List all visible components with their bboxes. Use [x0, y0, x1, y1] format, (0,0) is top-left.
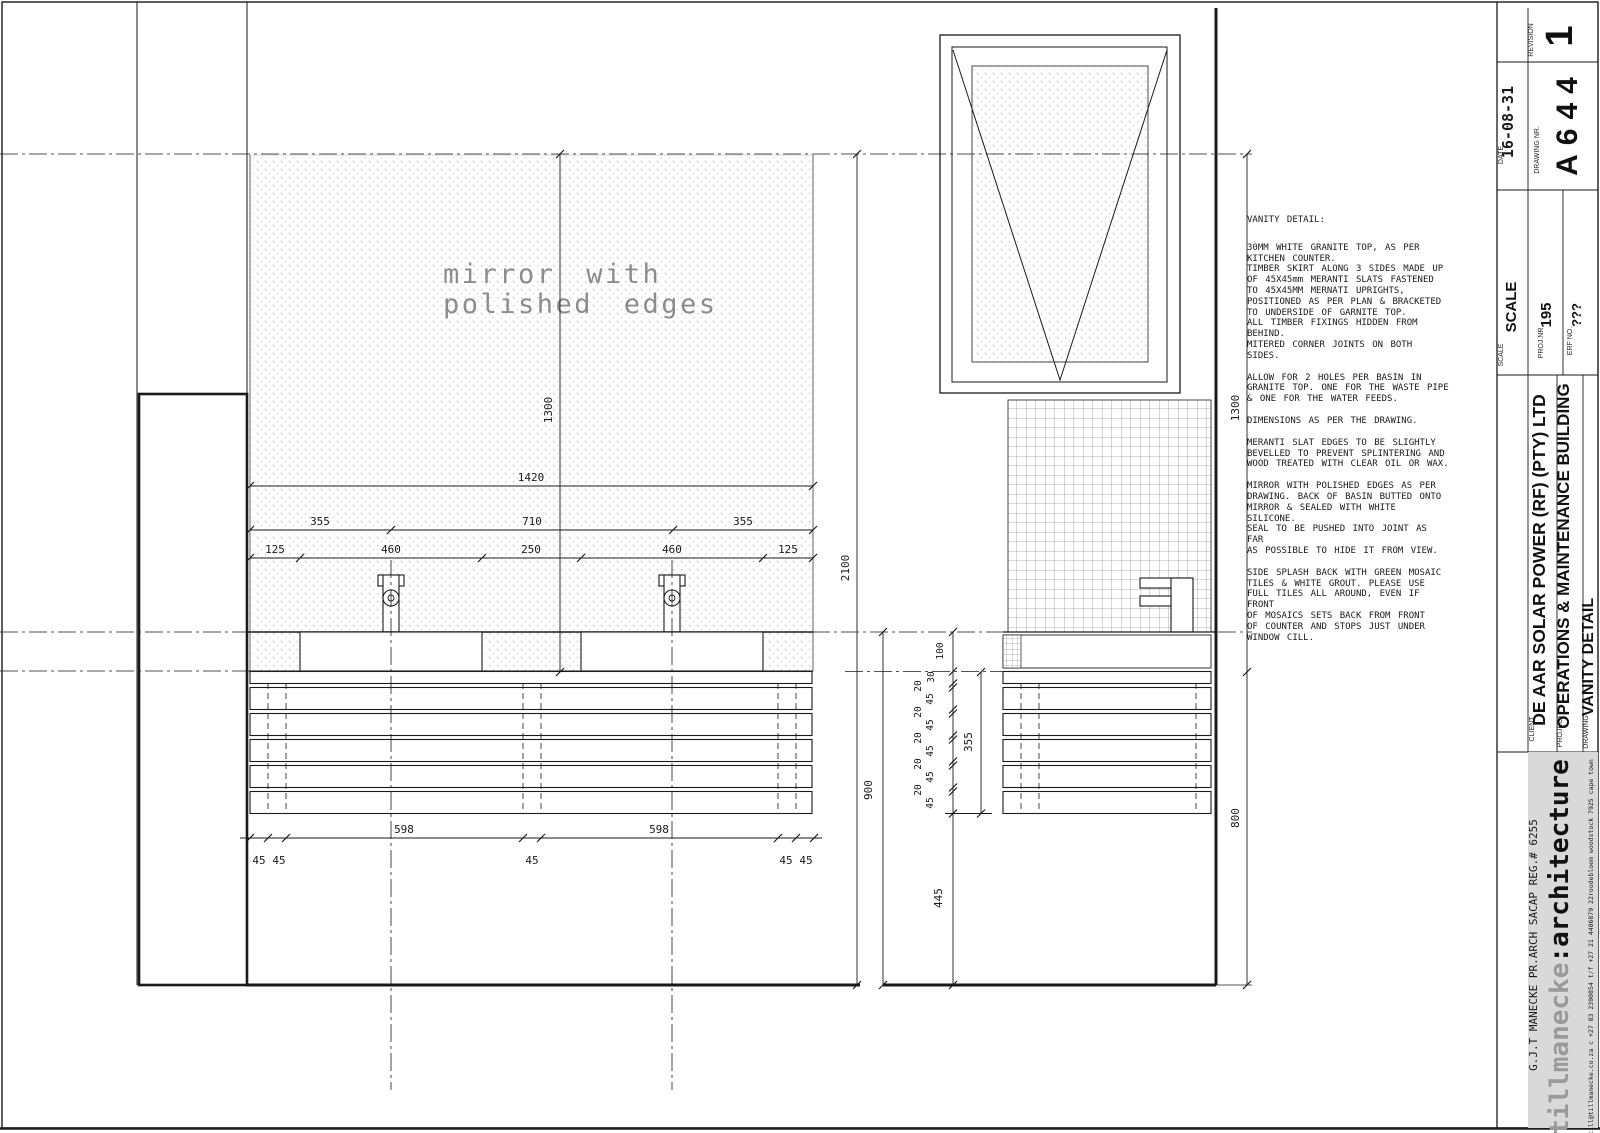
erf-label: ERF NO. [1567, 327, 1574, 355]
svg-text:20: 20 [913, 706, 924, 718]
svg-text:598: 598 [649, 823, 669, 836]
brand-logo: tillmanecke:architecture [1545, 759, 1575, 1133]
window-glass [972, 66, 1148, 362]
erf-value: ??? [1569, 303, 1584, 327]
svg-text:45: 45 [779, 854, 792, 867]
scale-label: SCALE [1498, 343, 1505, 366]
svg-text:125: 125 [265, 543, 285, 556]
svg-text:45: 45 [925, 771, 936, 782]
svg-text:45: 45 [252, 854, 265, 867]
svg-text:45: 45 [925, 797, 936, 808]
client-value: DE AAR SOLAR POWER (RF) (PTY) LTD [1529, 394, 1549, 726]
svg-text:45: 45 [925, 719, 936, 730]
svg-text:125: 125 [778, 543, 798, 556]
mirror-label-line2: polished edges [443, 289, 718, 320]
svg-text:45: 45 [925, 745, 936, 756]
contact-info: till@tillmanecke.co.za c +27 83 2390854 … [1587, 759, 1595, 1133]
drawing-nr-label: DRAWING NR. [1534, 126, 1541, 174]
notes-heading: VANITY DETAIL: [1247, 215, 1449, 226]
timber-slats-front [250, 672, 812, 814]
revision-value: 1 [1539, 25, 1581, 46]
revision-label: REVISION [1528, 23, 1535, 56]
proj-nr-value: 195 [1538, 302, 1555, 327]
dim-1420: 1420 [518, 471, 545, 484]
svg-text:100: 100 [935, 642, 946, 659]
svg-text:250: 250 [521, 543, 541, 556]
svg-text:30: 30 [926, 671, 937, 683]
dim-2100: 2100 [839, 555, 852, 582]
svg-text:45: 45 [799, 854, 812, 867]
svg-text:20: 20 [913, 784, 924, 796]
window-detail [940, 35, 1180, 393]
notes-paragraph: SIDE SPLASH BACK WITH GREEN MOSAIC TILES… [1247, 568, 1449, 644]
drawing-nr-value: A644 [1551, 68, 1584, 176]
timber-slats-side [1003, 672, 1211, 814]
svg-text:45: 45 [525, 854, 538, 867]
drawing-title-label: DRAWING [1583, 715, 1590, 749]
svg-text:460: 460 [662, 543, 682, 556]
svg-text:460: 460 [381, 543, 401, 556]
project-value: OPERATIONS & MAINTENANCE BUILDING [1554, 383, 1573, 728]
notes-paragraph: MIRROR WITH POLISHED EDGES AS PER DRAWIN… [1247, 481, 1449, 557]
svg-text:445: 445 [932, 888, 945, 908]
notes-paragraph: ALLOW FOR 2 HOLES PER BASIN IN GRANITE T… [1247, 373, 1449, 405]
dim-1300-front: 1300 [542, 397, 555, 424]
svg-text:355: 355 [310, 515, 330, 528]
svg-text:20: 20 [913, 680, 924, 692]
drawing-title-value: VANITY DETAIL [1580, 598, 1597, 716]
svg-text:598: 598 [394, 823, 414, 836]
svg-text:45: 45 [272, 854, 285, 867]
svg-text:900: 900 [862, 780, 875, 800]
side-splash-end [1003, 635, 1021, 668]
mirror-label-line1: mirror with [443, 259, 661, 290]
svg-text:45: 45 [925, 693, 936, 704]
counter-side [1003, 635, 1211, 668]
proj-nr-label: PROJ.NR. [1538, 326, 1545, 359]
notes-paragraph: DIMENSIONS AS PER THE DRAWING. [1247, 416, 1449, 427]
svg-text:20: 20 [913, 732, 924, 744]
drawing-sheet: mirror with polished edges [0, 0, 1600, 1133]
svg-text:1300: 1300 [1229, 395, 1242, 422]
notes-paragraph: 30MM WHITE GRANITE TOP, AS PER KITCHEN C… [1247, 243, 1449, 362]
specification-notes: VANITY DETAIL: 30MM WHITE GRANITE TOP, A… [1247, 215, 1449, 654]
scale-value: SCALE [1503, 282, 1520, 333]
brand-black: :architecture [1545, 759, 1575, 963]
svg-text:355: 355 [962, 732, 975, 752]
title-block: REVISION 1 DATE 16-08-31 DRAWING NR. A64… [1497, 2, 1598, 1133]
notes-paragraph: MERANTI SLAT EDGES TO BE SLIGHTLY BEVELL… [1247, 438, 1449, 470]
date-value: 16-08-31 [1499, 86, 1517, 158]
wall-section [139, 394, 247, 985]
brand-gray: tillmanecke [1545, 963, 1575, 1133]
architect-registration: G.J.T MANECKE PR.ARCH SACAP REG.# 6255 [1527, 819, 1540, 1071]
mirror-panel [250, 155, 813, 671]
svg-text:355: 355 [733, 515, 753, 528]
svg-text:800: 800 [1229, 808, 1242, 828]
svg-text:20: 20 [913, 758, 924, 770]
svg-text:710: 710 [522, 515, 542, 528]
